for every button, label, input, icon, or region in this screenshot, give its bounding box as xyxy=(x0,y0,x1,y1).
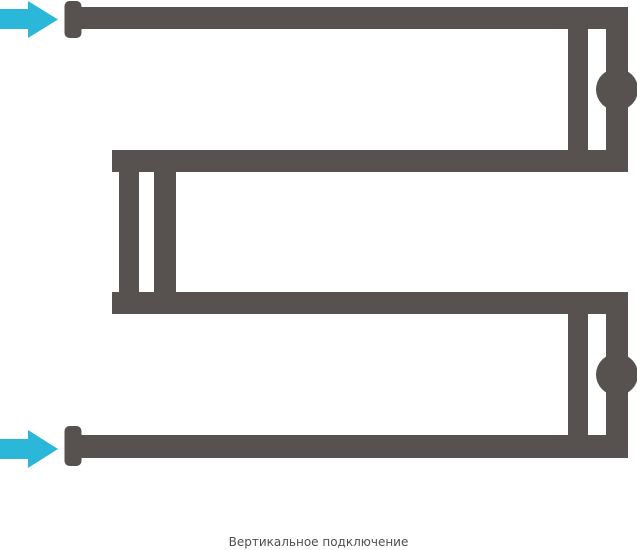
towel-rail-connection-diagram: Вертикальное подключение xyxy=(0,0,637,550)
pipe-horizontal-third xyxy=(112,292,628,314)
ball-valve-top-icon xyxy=(596,69,637,111)
ball-valve-bottom-icon xyxy=(596,354,637,396)
diagram-canvas: Вертикальное подключение xyxy=(0,0,637,550)
inlet-fitting-bottom xyxy=(65,426,82,466)
pipe-horizontal-top xyxy=(81,7,628,29)
pipe-horizontal-second xyxy=(112,150,628,172)
pipe-horizontal-bottom xyxy=(81,435,628,458)
riser-left-outer xyxy=(119,172,139,292)
riser-right-lower-inner xyxy=(568,313,588,435)
caption: Вертикальное подключение xyxy=(229,535,409,549)
inlet-fitting-top xyxy=(65,1,82,38)
riser-left-inner xyxy=(154,172,176,292)
flow-arrow-top-icon xyxy=(0,1,58,38)
riser-right-upper-inner xyxy=(568,28,588,150)
flow-arrow-bottom-icon xyxy=(0,430,58,468)
